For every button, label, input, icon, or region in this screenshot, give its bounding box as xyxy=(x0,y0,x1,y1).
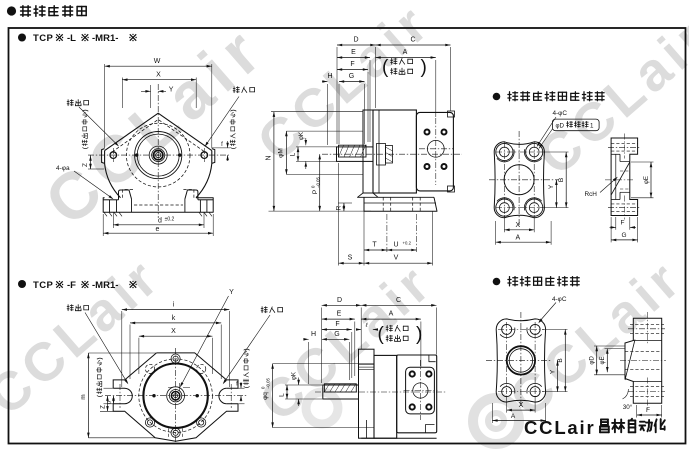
svg-text:X: X xyxy=(519,402,524,409)
svg-text:X: X xyxy=(156,72,161,79)
svg-text:φD: φD xyxy=(588,356,595,365)
svg-text:d: d xyxy=(158,218,162,225)
svg-text:φE: φE xyxy=(643,176,650,184)
svg-text:F: F xyxy=(646,407,650,414)
svg-text:T: T xyxy=(372,242,377,249)
svg-text:CCLair: CCLair xyxy=(524,417,595,438)
svg-text:(: ( xyxy=(378,324,385,345)
svg-text:): ) xyxy=(421,57,427,78)
svg-text:U: U xyxy=(393,242,398,249)
svg-text:m: m xyxy=(80,394,87,399)
svg-text:φE: φE xyxy=(599,356,606,364)
svg-text:E: E xyxy=(351,49,356,56)
svg-text:V: V xyxy=(394,255,399,262)
svg-text:−0.05: −0.05 xyxy=(266,378,271,389)
svg-text:H: H xyxy=(327,73,332,80)
svg-text:N: N xyxy=(266,155,273,160)
svg-text:X: X xyxy=(171,328,176,335)
svg-text:G: G xyxy=(621,232,626,239)
svg-text:): ) xyxy=(416,324,422,345)
svg-text:4-φC: 4-φC xyxy=(552,296,567,303)
svg-text:F: F xyxy=(350,61,354,68)
svg-text:F: F xyxy=(621,220,625,227)
svg-text:+0.2: +0.2 xyxy=(403,241,412,246)
svg-text:G: G xyxy=(334,331,339,338)
svg-text:4-φa: 4-φa xyxy=(56,165,70,172)
svg-text:φM: φM xyxy=(278,148,285,158)
svg-text:C: C xyxy=(410,37,415,44)
svg-text:P: P xyxy=(312,190,319,194)
svg-text:Y: Y xyxy=(169,87,174,94)
svg-text:S: S xyxy=(348,255,353,262)
svg-text:R: R xyxy=(336,205,343,210)
svg-text:A: A xyxy=(511,413,516,420)
svg-text:Z: Z xyxy=(82,163,89,167)
svg-text:1: 1 xyxy=(590,123,594,130)
svg-text:G: G xyxy=(349,73,354,80)
svg-text:φK: φK xyxy=(298,131,305,140)
svg-text:D: D xyxy=(337,297,342,304)
svg-text:4-φC: 4-φC xyxy=(553,110,568,117)
svg-text:k: k xyxy=(172,315,176,322)
svg-text:D: D xyxy=(353,37,358,44)
svg-text:Y: Y xyxy=(549,369,556,374)
svg-text:u: u xyxy=(107,401,113,404)
svg-text:e: e xyxy=(156,226,160,233)
svg-text:-L: -L xyxy=(67,33,76,44)
svg-text:E: E xyxy=(337,311,342,318)
svg-text:C: C xyxy=(396,297,401,304)
svg-text:F: F xyxy=(335,321,339,328)
svg-text:L: L xyxy=(290,152,297,156)
svg-text:L: L xyxy=(279,393,286,397)
svg-text:−0.05: −0.05 xyxy=(316,177,321,188)
svg-text:±0.2: ±0.2 xyxy=(165,217,175,223)
svg-text:-MR1-: -MR1- xyxy=(92,33,118,44)
svg-text:(: ( xyxy=(382,57,389,78)
svg-text:TCP: TCP xyxy=(33,280,53,291)
svg-text:-F: -F xyxy=(67,280,76,291)
svg-text:A: A xyxy=(403,49,408,56)
svg-text:A: A xyxy=(389,311,394,318)
svg-text:Y: Y xyxy=(229,289,234,296)
svg-text:-MR1-: -MR1- xyxy=(92,280,118,291)
svg-text:φD: φD xyxy=(556,123,565,130)
svg-text:30°: 30° xyxy=(623,403,633,411)
svg-text:B: B xyxy=(557,358,564,362)
svg-text:H: H xyxy=(311,331,316,338)
svg-text:Y: Y xyxy=(548,184,555,189)
svg-text:W: W xyxy=(154,58,161,65)
svg-text:TCP: TCP xyxy=(33,33,53,44)
svg-text:A: A xyxy=(515,235,520,242)
svg-text:B: B xyxy=(558,178,565,182)
svg-text:RcH: RcH xyxy=(585,191,598,198)
svg-text:φq: φq xyxy=(262,392,269,400)
svg-text:Z: Z xyxy=(100,405,106,409)
svg-text:φK: φK xyxy=(291,371,298,380)
svg-text:X: X xyxy=(515,222,520,229)
